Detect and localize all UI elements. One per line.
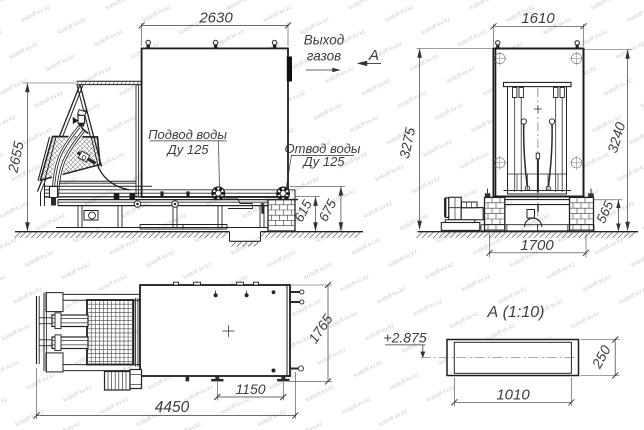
svg-text:Ду 125: Ду 125	[301, 154, 345, 169]
svg-text:4450: 4450	[155, 399, 190, 416]
svg-text:+2.875: +2.875	[383, 330, 426, 346]
svg-text:Выход: Выход	[304, 33, 345, 48]
svg-text:Подвод воды: Подвод воды	[148, 127, 227, 142]
svg-text:1150: 1150	[235, 381, 265, 397]
svg-text:1610: 1610	[521, 10, 555, 27]
svg-text:2630: 2630	[198, 10, 233, 27]
svg-text:А (1:10): А (1:10)	[487, 304, 545, 321]
svg-text:1700: 1700	[520, 237, 554, 254]
svg-text:1010: 1010	[496, 386, 530, 403]
svg-text:газов: газов	[307, 49, 341, 64]
svg-text:Ду 125: Ду 125	[165, 142, 209, 157]
svg-text:А: А	[368, 47, 379, 64]
